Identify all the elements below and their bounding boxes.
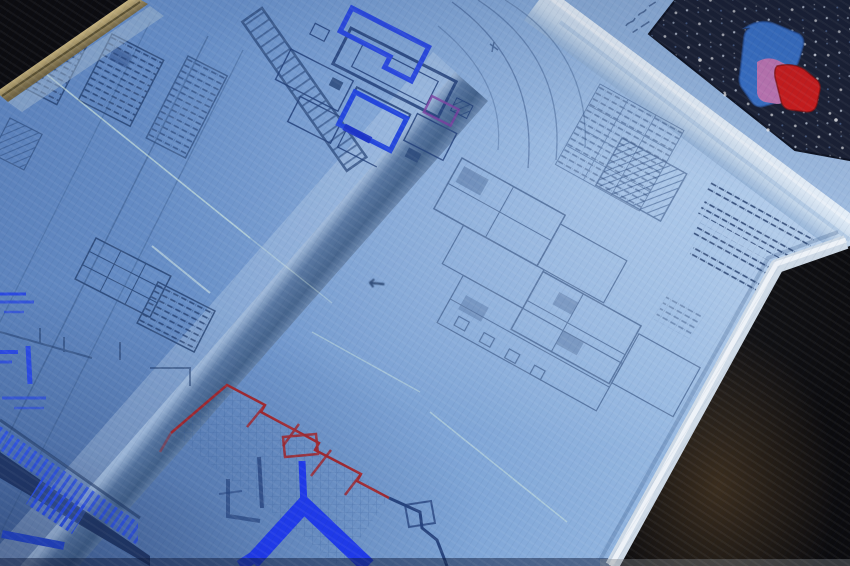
right-floor-plan [386, 138, 733, 445]
render-speckle [698, 58, 702, 62]
render-speckle [814, 54, 817, 57]
marked-plan [160, 385, 447, 566]
render-speckle [834, 118, 838, 122]
sheet-front-edge-shadow [0, 558, 640, 566]
blueprint-photo: Oblique photograph of large blue-tinted … [0, 0, 850, 566]
north-arrow: ← [367, 270, 403, 297]
render-speckle [724, 94, 727, 97]
table-front-edge [600, 559, 850, 566]
dark-room-bottom-right [600, 232, 850, 566]
left-edge-blue-marks [0, 294, 46, 408]
render-speckle [766, 128, 769, 131]
photo-artwork [0, 0, 850, 566]
